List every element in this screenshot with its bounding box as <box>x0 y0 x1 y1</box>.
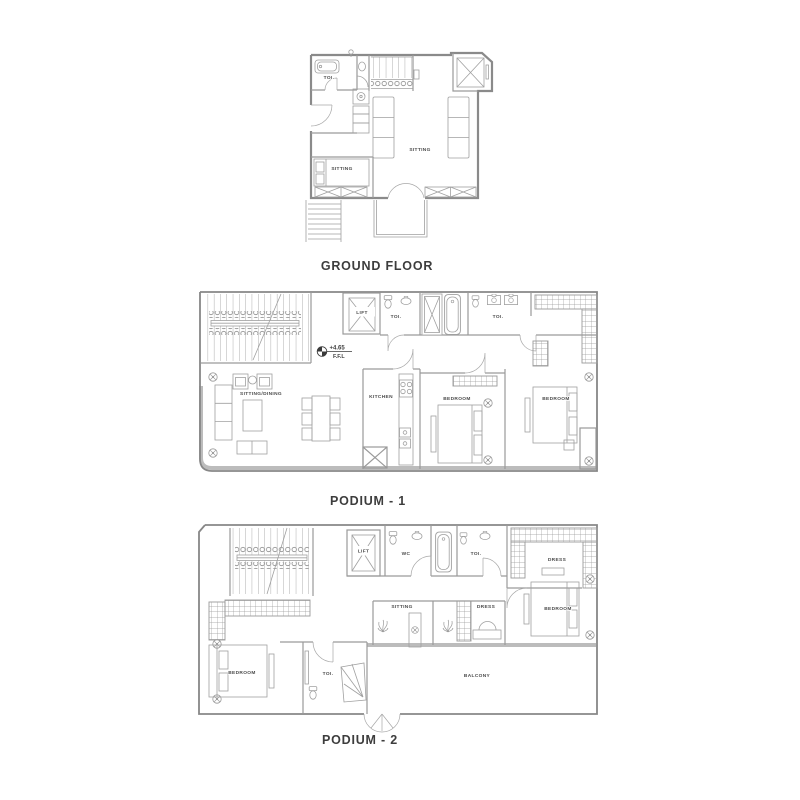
room-label-bedroom-center: BEDROOM <box>443 396 471 402</box>
column-marker-icon <box>209 449 217 457</box>
sofa-right <box>448 97 469 158</box>
bedroom-center-furniture <box>431 376 497 464</box>
room-label-sitting-small: SITTING <box>331 166 352 172</box>
column-marker-icon <box>585 457 593 465</box>
plant-icon <box>378 620 388 632</box>
door-arcs <box>311 78 424 198</box>
sofa-center <box>373 97 394 158</box>
sink-counter-icon <box>504 294 517 305</box>
floor-plan-sheet: TOI. SITTING SITTING GROUND FLOOR LIFT <box>0 0 800 800</box>
staircase <box>205 294 311 361</box>
staircase <box>371 57 413 89</box>
podium-1-floor-plan: LIFT +4.65 F.F.L <box>195 288 615 488</box>
bedroom-right-furniture <box>525 373 596 469</box>
room-label-bedroom-right: BEDROOM <box>544 606 572 612</box>
sitting-furniture <box>378 613 421 647</box>
daybed <box>314 159 369 186</box>
entry-porch <box>374 200 427 237</box>
lift-icon <box>457 58 489 87</box>
room-label-sitting-main: SITTING <box>409 147 430 153</box>
sink-counter-icon <box>487 294 500 305</box>
plan-title-ground-floor: GROUND FLOOR <box>277 259 477 273</box>
bathtub-icon <box>436 532 452 572</box>
plan-title-podium-2: PODIUM - 2 <box>260 733 460 747</box>
column-marker-icon <box>209 373 217 381</box>
room-label-bedroom-left: BEDROOM <box>228 670 256 676</box>
room-label-toi-left: TOI. <box>391 314 402 320</box>
ground-floor-plan: TOI. SITTING SITTING <box>285 45 500 260</box>
bathtub-icon <box>445 295 461 335</box>
level-value: +4.65 <box>330 346 346 352</box>
bathtub-icon <box>315 60 339 73</box>
wc-icon <box>384 296 392 309</box>
basin-icon <box>480 531 490 539</box>
room-label-kitchen: KITCHEN <box>369 394 393 400</box>
column-marker-icon <box>484 399 492 407</box>
staircase <box>232 528 313 594</box>
room-label-dress-top: DRESS <box>548 557 567 563</box>
plan-title-podium-1: PODIUM - 1 <box>268 494 468 508</box>
room-label-sitting: SITTING <box>391 604 412 610</box>
room-label-toi-bottom: TOI. <box>323 671 334 677</box>
column-marker-icon <box>412 627 419 634</box>
room-label-balcony: BALCONY <box>464 673 491 679</box>
basin-icon <box>412 531 422 539</box>
toi-bottom-fixtures <box>305 651 366 702</box>
level-marker: +4.65 F.F.L <box>317 346 352 361</box>
wc-icon <box>472 296 479 307</box>
room-label-lift: LIFT <box>356 310 368 316</box>
basin-icon <box>401 296 411 304</box>
terrace-band <box>201 386 596 468</box>
below-stair-wardrobes <box>209 600 310 703</box>
wc-icon <box>460 533 467 544</box>
column-marker-icon <box>484 456 492 464</box>
wc-icon <box>309 687 317 700</box>
door-arcs <box>388 335 536 373</box>
room-label-sitting-dining: SITTING/DINING <box>240 391 282 397</box>
kitchen-counter <box>363 374 413 468</box>
dining-table <box>302 396 340 441</box>
podium-2-floor-plan: LIFT <box>195 518 600 733</box>
column-marker-icon <box>585 373 593 381</box>
room-label-lift: LIFT <box>358 549 370 555</box>
sitting-dining-furniture <box>209 373 272 457</box>
plant-icon <box>443 620 453 632</box>
room-label-toi-right: TOI. <box>493 314 504 320</box>
room-label-dress-middle: DRESS <box>477 604 496 610</box>
wardrobes <box>533 295 597 366</box>
room-label-wc: WC <box>402 551 411 557</box>
level-datum: F.F.L <box>333 354 345 360</box>
column-marker-icon <box>586 631 594 639</box>
column-marker-icon <box>586 575 594 583</box>
room-label-toi: TOI. <box>324 75 335 81</box>
wc-icon <box>389 532 397 545</box>
room-label-toi-top: TOI. <box>471 551 482 557</box>
exterior-stair <box>306 200 341 242</box>
room-label-bedroom-right: BEDROOM <box>542 396 570 402</box>
planter-boxes <box>315 187 476 197</box>
